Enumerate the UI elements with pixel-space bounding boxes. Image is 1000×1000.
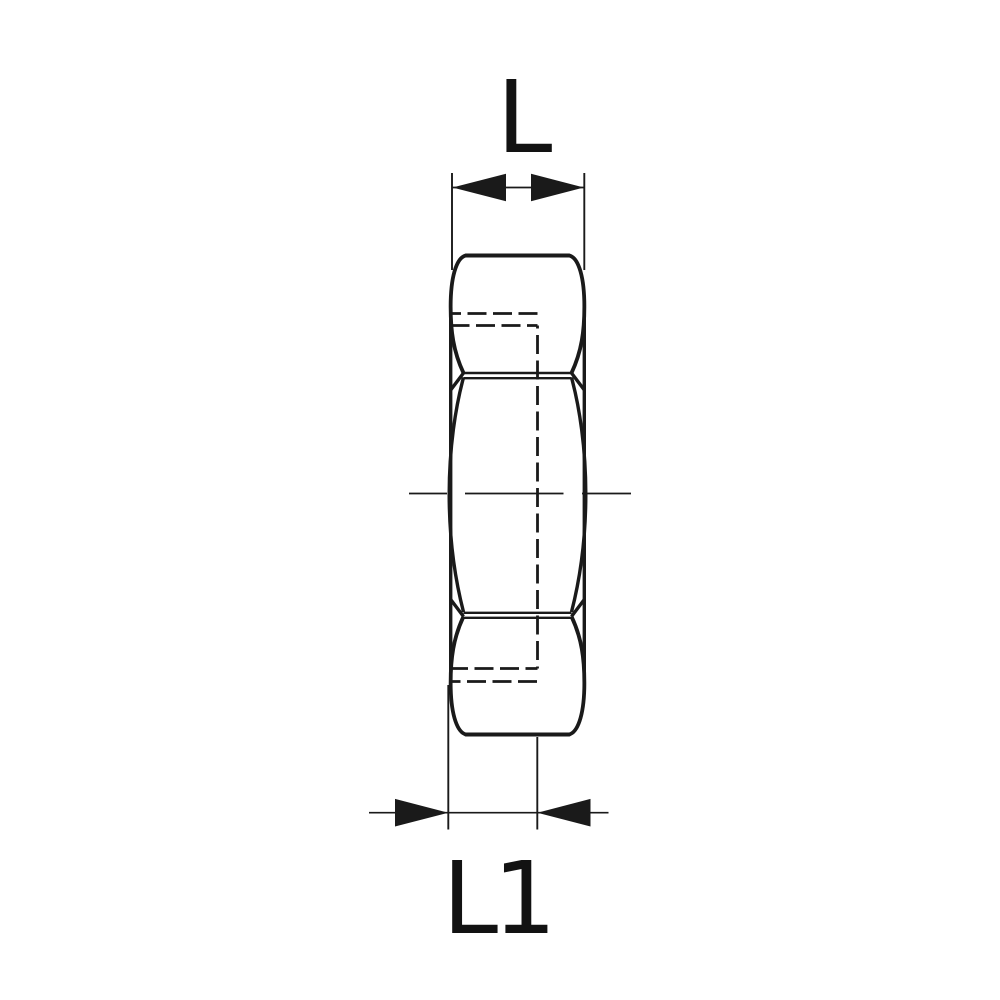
arrowhead-l1-left [395, 799, 448, 827]
nut-chamfer-curve-top-right [569, 256, 584, 374]
nut-chamfer-curve-bottom-right [569, 617, 584, 735]
arrowhead-l-left [453, 174, 507, 201]
nut-corner-edges [451, 373, 585, 617]
dimension-arrowheads [395, 174, 591, 827]
hex-nut-side-view-drawing: L L1 [0, 0, 1000, 1000]
arrowhead-l1-right [537, 799, 590, 827]
drawing-linework [369, 173, 631, 830]
arrowhead-l-right [531, 174, 584, 201]
technical-drawing-canvas: L L1 [0, 0, 1000, 1000]
nut-chamfer-curve-bottom-left [451, 617, 466, 735]
nut-facet-boundary-lines [464, 373, 572, 618]
dimension-label-l: L [497, 59, 553, 176]
dimension-extension-lines [448, 173, 584, 830]
dimension-label-l1: L1 [442, 840, 551, 957]
